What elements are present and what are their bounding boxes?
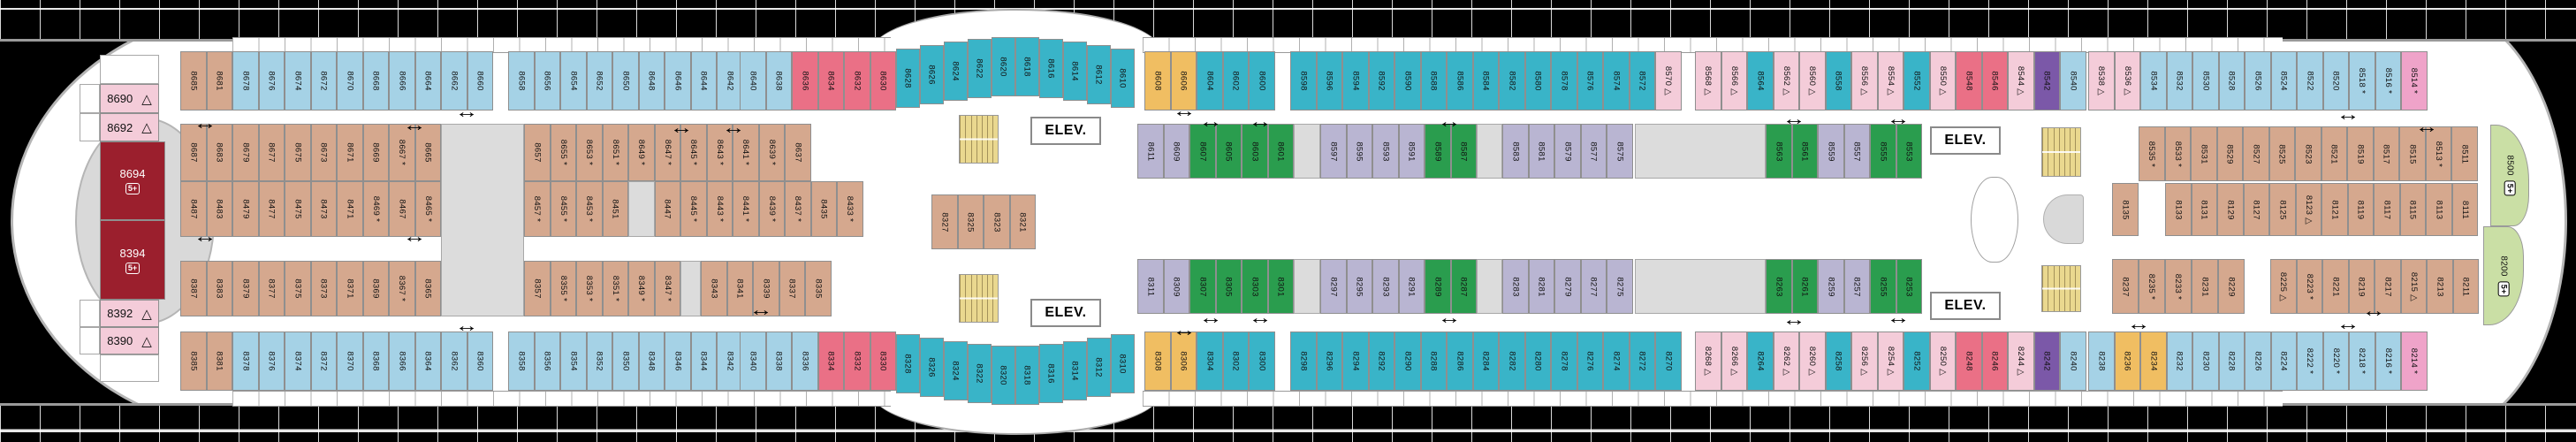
cabin-number: 8392: [107, 307, 133, 320]
cabin-8517: 8517: [2374, 126, 2400, 181]
cabin-8632: 8632: [844, 51, 870, 110]
cabin-8279: 8279: [1554, 259, 1581, 314]
cabin-number: 8281: [1537, 277, 1546, 296]
cabin-8653: 8653 *: [576, 124, 603, 181]
cabin-number: 8310: [1118, 354, 1128, 373]
cabin-8372: 8372: [311, 331, 338, 391]
cabin-8272: 8272: [1630, 331, 1656, 391]
cabin-8457: 8457 *: [524, 181, 551, 237]
cabin-number: 8342: [725, 351, 734, 370]
cabin-8347: 8347 *: [655, 261, 681, 316]
cabin-8559: 8559: [1818, 124, 1844, 179]
cabin-8634: 8634: [818, 51, 845, 110]
cabin-number: 8240: [2068, 351, 2078, 370]
cabin-8371: 8371: [337, 261, 363, 316]
cabin-number: 8279: [1562, 277, 1572, 296]
cabin-number: 8568 △: [1703, 66, 1713, 95]
service-block: [628, 181, 655, 237]
cabin-number: 8255: [1878, 277, 1888, 296]
stairs-arrow-icon: ↔: [1199, 309, 1223, 327]
cabin-8603: 8603: [1242, 124, 1268, 179]
cabin-number: 8259: [1826, 277, 1835, 296]
cabin-number: 8264: [1755, 351, 1765, 370]
cabin-number: 8564: [1755, 71, 1765, 90]
cabin-number: 8600: [1257, 71, 1266, 90]
cabin-number: 8668: [371, 71, 381, 90]
cabin-8595: 8595: [1347, 124, 1373, 179]
cabin-number: 8553: [1904, 141, 1914, 161]
cabin-number: 8500: [2505, 155, 2515, 175]
cabin-number: 8683: [215, 142, 224, 162]
cabin-number: 8311: [1145, 277, 1155, 296]
cabin-8234: 8234: [2140, 331, 2167, 391]
cabin-8274: 8274: [1603, 331, 1630, 391]
cabin-number: 8232: [2175, 351, 2185, 370]
cabin-8605: 8605: [1216, 124, 1242, 179]
cabin-8657: 8657: [524, 124, 551, 181]
cabin-number: 8214 *: [2409, 348, 2419, 374]
cabin-8325: 8325: [958, 194, 984, 249]
cabin-number: 8433 *: [845, 196, 855, 222]
cabin-8520: 8520: [2323, 51, 2350, 110]
cabin-8692: 8692△: [100, 113, 159, 141]
cabin-8131: 8131: [2192, 183, 2218, 236]
cabin-8291: 8291: [1399, 259, 1425, 314]
cabin-number: 8387: [188, 278, 198, 298]
cabin-number: 8127: [2252, 200, 2261, 219]
stairs-arrow-icon: ↔: [2337, 316, 2360, 333]
cabin-8553: 8553: [1896, 124, 1923, 179]
cabin-8305: 8305: [1216, 259, 1242, 314]
cabin-8289: 8289: [1425, 259, 1451, 314]
bow-cell: [80, 113, 100, 141]
cabin-number: 8676: [267, 71, 277, 90]
service-block: [1294, 259, 1320, 314]
cabin-number: 8583: [1510, 141, 1520, 161]
cabin-8311: 8311: [1137, 259, 1164, 314]
cabin-8321: 8321: [1010, 194, 1037, 249]
cabin-number: 8471: [345, 199, 354, 218]
elevator-label: ELEV.: [1030, 117, 1101, 145]
cabin-8294: 8294: [1342, 331, 1369, 391]
cabin-number: 8447: [663, 199, 672, 218]
cabin-number: 8570 △: [1663, 66, 1673, 95]
cabin-number: 8540: [2068, 71, 2078, 90]
cabin-number: 8637: [793, 142, 802, 162]
cabin-number: 8219: [2357, 277, 2367, 296]
cabin-number: 8451: [611, 199, 620, 218]
cabin-8354: 8354: [560, 331, 587, 391]
cabin-8221: 8221: [2322, 259, 2349, 314]
cabin-number: 8336: [800, 351, 809, 370]
cabin-8115: 8115: [2400, 183, 2427, 236]
cabin-number: 8341: [735, 278, 745, 298]
cabin-8229: 8229: [2218, 259, 2245, 314]
cabin-8226: 8226: [2245, 331, 2271, 391]
cabin-number: 8321: [1018, 212, 1028, 232]
cabin-8601: 8601: [1268, 124, 1295, 179]
cabin-number: 8111: [2460, 201, 2470, 219]
cabin-8244: 8244 △: [2008, 331, 2034, 391]
cabin-number: 8643 *: [715, 140, 725, 165]
cabin-8439: 8439 *: [759, 181, 786, 237]
cabin-8664: 8664: [415, 51, 442, 110]
cabin-8351: 8351 *: [603, 261, 629, 316]
stairs-arrow-icon: ↔: [1887, 309, 1911, 327]
cabin-8563: 8563: [1766, 124, 1792, 179]
cabin-number: 8546: [1990, 71, 2000, 90]
cabin-8527: 8527: [2243, 126, 2269, 181]
cabin-number: 8330: [878, 351, 888, 370]
cabin-8577: 8577: [1581, 124, 1607, 179]
cabin-number: 8121: [2329, 200, 2339, 219]
cabin-number: 8234: [2148, 351, 2158, 370]
stairs-arrow-icon: ↔: [722, 119, 746, 137]
cabin-number: 8238: [2096, 351, 2106, 370]
cabin-number: 8312: [1094, 357, 1104, 377]
stairs-arrow-icon: ↔: [1173, 103, 1197, 120]
cabin-8275: 8275: [1607, 259, 1633, 314]
cabin-number: 8226: [2253, 351, 2262, 370]
cabin-number: 8318: [1022, 365, 1032, 385]
cabin-8637: 8637: [785, 124, 811, 181]
cabin-number: 8554 △: [1886, 66, 1896, 95]
cabin-8353: 8353 *: [576, 261, 603, 316]
cabin-number: 8326: [927, 357, 937, 377]
cabin-number: 8591: [1407, 141, 1417, 161]
cabin-8630: 8630: [870, 51, 897, 110]
cabin-8324: 8324: [944, 341, 968, 400]
cabin-number: 8522: [2305, 71, 2314, 90]
cabin-8224: 8224: [2271, 331, 2298, 391]
cabin-8435: 8435: [811, 181, 838, 237]
cabin-number: 8229: [2227, 277, 2237, 296]
cabin-8666: 8666: [389, 51, 415, 110]
cabin-8533: 8533 *: [2165, 126, 2192, 181]
cabin-8235: 8235 *: [2139, 259, 2165, 314]
cabin-number: 8630: [878, 71, 888, 90]
cabin-8561: 8561: [1792, 124, 1819, 179]
cabin-number: 8530: [2200, 71, 2210, 90]
cabin-number: 8119: [2356, 200, 2366, 219]
cabin-number: 8377: [267, 278, 277, 298]
cabin-number: 8519: [2355, 144, 2365, 164]
cabin-8213: 8213: [2427, 259, 2453, 314]
cabin-8540: 8540: [2060, 51, 2086, 110]
cabin-number: 8527: [2251, 144, 2261, 164]
cabin-8586: 8586: [1447, 51, 1473, 110]
cabin-8365: 8365: [415, 261, 442, 316]
cabin-8582: 8582: [1499, 51, 1525, 110]
cabin-8546: 8546: [1982, 51, 2009, 110]
cabin-8297: 8297: [1320, 259, 1347, 314]
cabin-8281: 8281: [1529, 259, 1555, 314]
cabin-number: 8584: [1481, 71, 1491, 90]
cabin-number: 8435: [819, 199, 829, 218]
cabin-number: 8646: [672, 71, 682, 90]
cabin-number: 8223 *: [2305, 273, 2314, 299]
cabin-number: 8217: [2382, 277, 2392, 296]
cabin-number: 8517: [2382, 144, 2391, 164]
cabin-number: 8656: [543, 71, 552, 90]
cabin-8378: 8378: [232, 331, 259, 391]
cabin-number: 8681: [215, 71, 224, 90]
cabin-number: 8654: [568, 71, 578, 90]
cabin-8278: 8278: [1551, 331, 1577, 391]
cabin-number: 8632: [852, 71, 862, 90]
cabin-8662: 8662: [441, 51, 467, 110]
cabin-8574: 8574: [1603, 51, 1630, 110]
cabin-number: 8365: [423, 278, 433, 298]
cabin-8544: 8544 △: [2008, 51, 2034, 110]
cabin-8135: 8135: [2112, 183, 2139, 236]
cabin-number: 8322: [975, 363, 984, 383]
cabin-number: 8325: [966, 212, 976, 232]
cabin-8658: 8658: [508, 51, 535, 110]
cabin-8293: 8293: [1372, 259, 1399, 314]
cabin-number: 8596: [1325, 71, 1334, 90]
cabin-number: 8270: [1663, 351, 1673, 370]
cabin-8477: 8477: [259, 181, 285, 237]
cabin-number: 8228: [2227, 351, 2237, 370]
cabin-number: 8660: [475, 71, 485, 90]
cabin-8593: 8593: [1372, 124, 1399, 179]
cabin-number: 8669: [371, 142, 381, 162]
cabin-number: 8215 △: [2409, 271, 2419, 301]
cabin-8576: 8576: [1577, 51, 1604, 110]
cabin-number: 8353 *: [584, 276, 594, 301]
cabin-number: 8690: [107, 92, 133, 105]
cabin-number: 8236: [2123, 351, 2132, 370]
cabin-number: 8303: [1250, 277, 1259, 296]
cabin-number: 8394: [120, 247, 146, 260]
stairs-arrow-icon: ↔: [2362, 302, 2386, 320]
cabin-8525: 8525: [2269, 126, 2296, 181]
cabin-8326: 8326: [920, 338, 944, 397]
cabin-number: 8542: [2042, 71, 2052, 90]
cabin-number: 8256 △: [1859, 347, 1869, 376]
cabin-8216: 8216 *: [2375, 331, 2402, 391]
stairs-arrow-icon: ↔: [1887, 110, 1911, 128]
cabin-number: 8603: [1250, 141, 1259, 161]
cabin-8514: 8514 *: [2401, 51, 2428, 110]
cabin-number: 8274: [1611, 351, 1621, 370]
cabin-8264: 8264: [1747, 331, 1774, 391]
cabin-8283: 8283: [1502, 259, 1529, 314]
cabin-8309: 8309: [1164, 259, 1190, 314]
cabin-number: 8525: [2277, 144, 2287, 164]
cabin-number: 8647 *: [663, 140, 672, 165]
cabin-8628: 8628: [896, 49, 920, 108]
accessible-icon: △: [141, 119, 152, 135]
lifeboat-band-bottom: [0, 403, 2576, 442]
cabin-number: 8589: [1432, 141, 1442, 161]
cabin-8375: 8375: [285, 261, 311, 316]
cabin-8655: 8655 *: [551, 124, 577, 181]
accessible-icon: △: [141, 91, 152, 107]
cabin-8524: 8524: [2271, 51, 2298, 110]
service-block: [1294, 124, 1320, 179]
cabin-8304: 8304: [1197, 331, 1223, 391]
cabin-8286: 8286: [1447, 331, 1473, 391]
cabin-number: 8610: [1118, 68, 1128, 88]
suite-badge: 5+: [2504, 181, 2516, 196]
cabin-8123: 8123 △: [2296, 183, 2322, 236]
cabin-number: 8588: [1429, 71, 1439, 90]
cabin-8531: 8531: [2191, 126, 2217, 181]
cabin-number: 8574: [1611, 71, 1621, 90]
cabin-8530: 8530: [2192, 51, 2219, 110]
cabin-8568: 8568 △: [1695, 51, 1721, 110]
cabin-number: 8288: [1429, 351, 1439, 370]
cabin-8111: 8111: [2452, 183, 2479, 236]
cabin-number: 8592: [1377, 71, 1387, 90]
cabin-8523: 8523: [2295, 126, 2321, 181]
cabin-number: 8339: [761, 278, 771, 298]
cabin-number: 8250 △: [1938, 347, 1948, 376]
cabin-number: 8620: [999, 57, 1008, 76]
cabin-8318: 8318: [1015, 346, 1039, 405]
cabin-8572: 8572: [1630, 51, 1656, 110]
cabin-8255: 8255: [1870, 259, 1896, 314]
cabin-number: 8557: [1852, 141, 1862, 161]
stairs-arrow-icon: ↔: [403, 117, 427, 134]
cabin-8254: 8254 △: [1878, 331, 1904, 391]
cabin-number: 8605: [1224, 141, 1234, 161]
cabin-8125: 8125: [2269, 183, 2296, 236]
cabin-8310: 8310: [1111, 334, 1135, 393]
service-block: [680, 261, 701, 316]
cabin-number: 8441 *: [741, 196, 750, 222]
cabin-number: 8291: [1407, 277, 1417, 296]
cabin-number: 8306: [1179, 351, 1189, 370]
cabin-number: 8611: [1145, 141, 1155, 161]
cabin-8649: 8649 *: [628, 124, 655, 181]
cabin-number: 8302: [1231, 351, 1241, 370]
cabin-number: 8674: [293, 71, 302, 90]
cabin-8670: 8670: [337, 51, 363, 110]
cabin-number: 8383: [215, 278, 224, 298]
cabin-number: 8579: [1562, 141, 1572, 161]
cabin-number: 8314: [1070, 361, 1080, 380]
cabin-8597: 8597: [1320, 124, 1347, 179]
cabin-8678: 8678: [232, 51, 259, 110]
cabin-8652: 8652: [587, 51, 613, 110]
cabin-8557: 8557: [1844, 124, 1871, 179]
cabin-number: 8277: [1589, 277, 1599, 296]
cabin-number: 8300: [1257, 351, 1266, 370]
cabin-8284: 8284: [1473, 331, 1500, 391]
stairs-arrow-icon: ↔: [749, 301, 773, 319]
cabin-number: 8294: [1350, 351, 1360, 370]
cabin-8237: 8237: [2112, 259, 2139, 314]
cabin-8228: 8228: [2219, 331, 2245, 391]
cabin-number: 8655 *: [559, 140, 568, 165]
cabin-8394: 83945+: [100, 220, 165, 300]
cabin-number: 8616: [1046, 58, 1056, 78]
cabin-number: 8479: [240, 199, 250, 218]
cabin-number: 8640: [748, 71, 757, 90]
cabin-8584: 8584: [1473, 51, 1500, 110]
cabin-number: 8316: [1046, 363, 1056, 383]
cabin-8453: 8453 *: [576, 181, 603, 237]
cabin-8352: 8352: [587, 331, 613, 391]
cabin-8360: 8360: [467, 331, 494, 391]
cabin-number: 8379: [240, 278, 250, 298]
cabin-8340: 8340: [740, 331, 766, 391]
cabin-number: 8254 △: [1886, 347, 1896, 376]
cabin-number: 8653 *: [584, 140, 594, 165]
cabin-8316: 8316: [1039, 344, 1063, 403]
cabin-8343: 8343: [701, 261, 727, 316]
cabin-8268: 8268 △: [1695, 331, 1721, 391]
cabin-number: 8367 *: [397, 276, 407, 301]
cabin-8320: 8320: [992, 346, 1015, 405]
cabin-number: 8344: [699, 351, 709, 370]
cabin-number: 8371: [345, 278, 354, 298]
cabin-number: 8131: [2200, 200, 2209, 219]
stairs-arrow-icon: ↔: [455, 103, 479, 121]
cabin-8252: 8252: [1904, 331, 1930, 391]
cabin-number: 8469 *: [371, 196, 381, 222]
cabin-number: 8657: [532, 142, 542, 162]
cabin-number: 8548: [1964, 71, 1973, 90]
cabin-8596: 8596: [1317, 51, 1343, 110]
cabin-8368: 8368: [363, 331, 390, 391]
cabin-number: 8453 *: [584, 196, 594, 222]
cabin-8337: 8337: [779, 261, 806, 316]
cabin-8636: 8636: [792, 51, 818, 110]
cabin-number: 8467: [397, 199, 407, 218]
cabin-number: 8580: [1533, 71, 1543, 90]
cabin-8236: 8236: [2115, 331, 2141, 391]
cabin-number: 8225 △: [2278, 271, 2288, 301]
elevator-label: ELEV.: [1930, 126, 2001, 155]
cabin-number: 8220 *: [2331, 348, 2341, 374]
cabin-number: 8685: [188, 71, 198, 90]
cabin-8349: 8349 *: [628, 261, 655, 316]
cabin-8441: 8441 *: [733, 181, 759, 237]
cabin-number: 8671: [345, 142, 354, 162]
cabin-number: 8578: [1559, 71, 1569, 90]
cabin-number: 8213: [2435, 277, 2444, 296]
cabin-8583: 8583: [1502, 124, 1529, 179]
cabin-number: 8266 △: [1729, 347, 1739, 376]
cabin-number: 8289: [1432, 277, 1442, 296]
stairs-arrow-icon: ↔: [2415, 118, 2439, 136]
cabin-number: 8443 *: [715, 196, 725, 222]
cabin-number: 8275: [1615, 277, 1624, 296]
cabin-number: 8218 *: [2357, 348, 2367, 374]
cabin-number: 8308: [1152, 351, 1162, 370]
cabin-8518: 8518 *: [2349, 51, 2375, 110]
cabin-8445: 8445 *: [680, 181, 707, 237]
cabin-8602: 8602: [1223, 51, 1250, 110]
cabin-number: 8667 *: [397, 140, 407, 165]
stairs-arrow-icon: ↔: [670, 119, 694, 137]
cabin-number: 8521: [2329, 144, 2339, 164]
cabin-number: 8516 *: [2383, 68, 2393, 94]
cabin-8447: 8447: [655, 181, 681, 237]
cabin-number: 8556 △: [1859, 66, 1869, 95]
cabin-8280: 8280: [1525, 331, 1552, 391]
cabin-number: 8457 *: [532, 196, 542, 222]
cabin-8231: 8231: [2192, 259, 2218, 314]
cabin-number: 8535 *: [2147, 141, 2156, 166]
cabin-8660: 8660: [467, 51, 494, 110]
balcony-cells-bottom-right: [1143, 391, 2283, 407]
cabin-8322: 8322: [968, 344, 992, 403]
